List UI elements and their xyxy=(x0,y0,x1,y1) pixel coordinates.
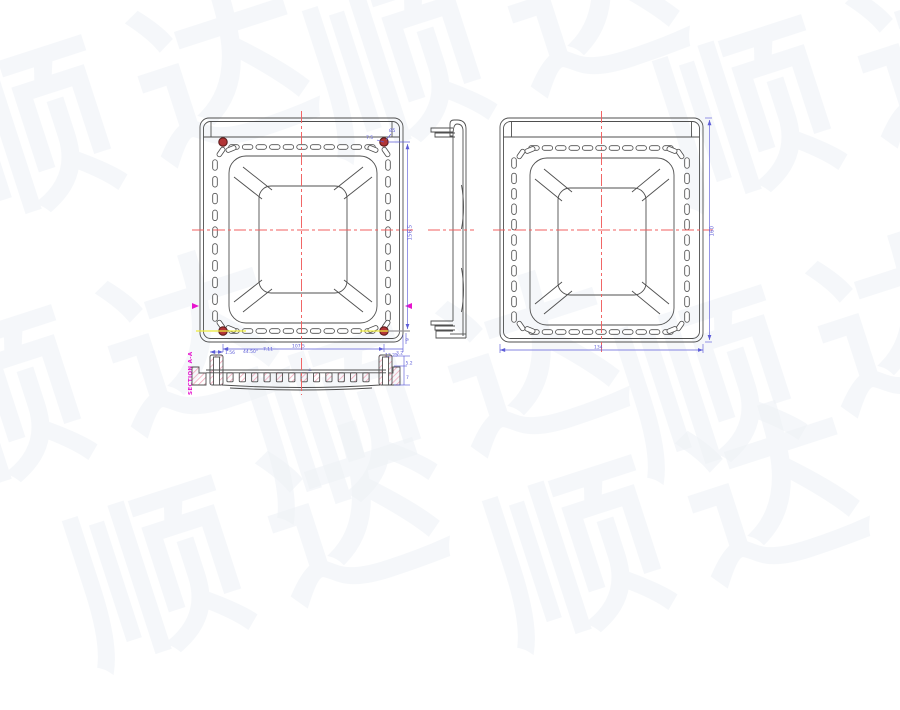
slot xyxy=(542,146,553,151)
slot xyxy=(213,311,218,322)
slot xyxy=(386,244,391,255)
slot xyxy=(213,277,218,288)
slot xyxy=(367,145,378,153)
slot xyxy=(310,329,321,334)
slot xyxy=(636,330,647,335)
slot xyxy=(609,330,620,335)
chamfer-line xyxy=(243,167,272,190)
slot xyxy=(649,330,660,335)
slot xyxy=(367,325,378,333)
slot xyxy=(512,266,517,277)
snap-dot xyxy=(219,138,227,146)
top-view-tray-floor xyxy=(259,186,347,293)
section-bottom-skin-inner xyxy=(230,388,372,390)
side-view xyxy=(428,120,474,338)
chamfer-line xyxy=(334,289,363,312)
slot xyxy=(213,177,218,188)
chamfer-line xyxy=(234,177,262,199)
back-view-dimensions: 134 160 xyxy=(500,118,716,353)
dim-edge-depth: 9 xyxy=(405,338,411,341)
chamfer-line xyxy=(544,291,572,314)
slot xyxy=(685,204,690,215)
slot xyxy=(216,146,226,157)
dim-boss: 5.2 xyxy=(406,361,413,367)
section-left-bracket xyxy=(192,367,206,385)
slot xyxy=(512,219,517,230)
back-view-slot-ring xyxy=(512,146,690,335)
dim-step: 1.56 xyxy=(225,350,235,356)
slot xyxy=(512,173,517,184)
slot xyxy=(556,146,567,151)
slot xyxy=(685,281,690,292)
slot xyxy=(685,266,690,277)
cad-drawing-canvas: 156.5 7.5 Ø5 107.5 13.25 9 xyxy=(0,0,900,500)
slot xyxy=(213,260,218,271)
side-profile-outer xyxy=(450,120,466,338)
dim-angle: 44.50° xyxy=(243,349,258,355)
slot xyxy=(242,145,253,150)
slot xyxy=(512,296,517,307)
slot xyxy=(324,145,335,150)
slot xyxy=(386,277,391,288)
slot xyxy=(256,145,267,150)
perpendicular-mark: ⊥ xyxy=(308,367,312,373)
chamfer-line xyxy=(642,179,669,201)
tooth xyxy=(363,373,369,382)
top-view-corner-chamfers xyxy=(234,167,372,312)
tooth xyxy=(338,373,344,382)
section-arrow-right xyxy=(405,303,412,309)
slot xyxy=(542,330,553,335)
dim-depth: 7 xyxy=(406,375,409,381)
tooth xyxy=(239,373,245,382)
dim-corner-diameter: Ø5 xyxy=(389,127,396,134)
dim-height: 156.5 xyxy=(408,224,414,240)
chamfer-line xyxy=(642,282,669,304)
tab-bar xyxy=(435,326,455,330)
chamfer-line xyxy=(344,280,372,302)
slot xyxy=(649,146,660,151)
back-view-corner-chamfers xyxy=(535,169,669,314)
slot xyxy=(213,160,218,171)
section-view: SECTION A-A ⊥ 1.56 44.50° 7.11 3.2 5.2 7 xyxy=(188,347,413,396)
slot xyxy=(310,145,321,150)
slot xyxy=(556,330,567,335)
slot xyxy=(516,320,526,331)
slot xyxy=(512,312,517,323)
dim-inner-width: 107.5 xyxy=(292,344,305,350)
slot xyxy=(516,148,526,159)
slot xyxy=(685,312,690,323)
dim-width: 134 xyxy=(594,345,603,351)
dim-corner-offset: 7.5 xyxy=(366,135,373,141)
slot xyxy=(512,281,517,292)
slot xyxy=(338,145,349,150)
slot xyxy=(582,146,593,151)
slot xyxy=(623,330,634,335)
back-view-tray-rim xyxy=(530,158,674,325)
slot xyxy=(256,329,267,334)
slot xyxy=(270,145,281,150)
chamfer-line xyxy=(535,282,562,304)
slot xyxy=(685,173,690,184)
chamfer-line xyxy=(334,167,363,190)
slot xyxy=(324,329,335,334)
chamfer-line xyxy=(632,291,660,314)
back-view-tray-floor xyxy=(558,188,646,295)
slot xyxy=(685,189,690,200)
dim-lead: 7.11 xyxy=(263,347,273,353)
chamfer-line xyxy=(535,179,562,201)
slot xyxy=(596,146,607,151)
slot xyxy=(351,145,362,150)
slot xyxy=(213,210,218,221)
section-teeth xyxy=(227,373,369,382)
slot xyxy=(386,193,391,204)
side-foot xyxy=(436,331,466,338)
tooth xyxy=(301,373,307,382)
slot xyxy=(512,158,517,169)
slot xyxy=(636,146,647,151)
tooth xyxy=(227,373,233,382)
back-view: 134 160 xyxy=(493,111,716,353)
slot xyxy=(213,244,218,255)
slot xyxy=(623,146,634,151)
slot xyxy=(213,294,218,305)
slot xyxy=(685,158,690,169)
tooth xyxy=(276,373,282,382)
slot xyxy=(213,227,218,238)
slot xyxy=(386,294,391,305)
slot xyxy=(512,189,517,200)
tooth xyxy=(252,373,258,382)
tooth xyxy=(313,373,319,382)
top-view-tray-rim xyxy=(229,156,377,323)
tooth xyxy=(289,373,295,382)
slot xyxy=(512,250,517,261)
slot xyxy=(386,311,391,322)
dim-rib: 3.2 xyxy=(396,351,403,357)
slot xyxy=(685,250,690,261)
slot xyxy=(582,330,593,335)
slot xyxy=(283,329,294,334)
slot xyxy=(386,227,391,238)
side-bottom-tab xyxy=(431,321,455,330)
slot xyxy=(213,193,218,204)
slot xyxy=(524,146,535,154)
slot xyxy=(381,146,391,157)
chamfer-line xyxy=(632,169,660,192)
top-view: 156.5 7.5 Ø5 107.5 13.25 9 xyxy=(192,111,414,359)
slot xyxy=(297,329,308,334)
slot xyxy=(386,160,391,171)
slot xyxy=(386,210,391,221)
tooth xyxy=(326,373,332,382)
slot xyxy=(569,330,580,335)
slot xyxy=(524,326,535,334)
slot xyxy=(685,296,690,307)
slot xyxy=(225,145,236,153)
chamfer-line xyxy=(344,177,372,199)
section-left-boss-core xyxy=(214,357,220,385)
chamfer-line xyxy=(243,289,272,312)
chamfer-line xyxy=(234,280,262,302)
slot xyxy=(596,330,607,335)
slot xyxy=(512,204,517,215)
slot xyxy=(297,145,308,150)
section-bottom-skin-outer xyxy=(222,385,380,388)
slot xyxy=(609,146,620,151)
slot xyxy=(512,235,517,246)
tab-bar xyxy=(431,321,453,325)
dim-height: 160 xyxy=(710,226,716,237)
slot xyxy=(685,235,690,246)
slot xyxy=(666,146,677,154)
slot xyxy=(569,146,580,151)
slot xyxy=(685,219,690,230)
slot xyxy=(338,329,349,334)
tooth xyxy=(264,373,270,382)
chamfer-line xyxy=(544,169,572,192)
slot xyxy=(270,329,281,334)
slot xyxy=(386,260,391,271)
slot xyxy=(386,177,391,188)
section-right-boss-core xyxy=(383,357,389,385)
section-arrow-left xyxy=(192,303,199,309)
slot xyxy=(666,326,677,334)
slot xyxy=(283,145,294,150)
tooth xyxy=(351,373,357,382)
